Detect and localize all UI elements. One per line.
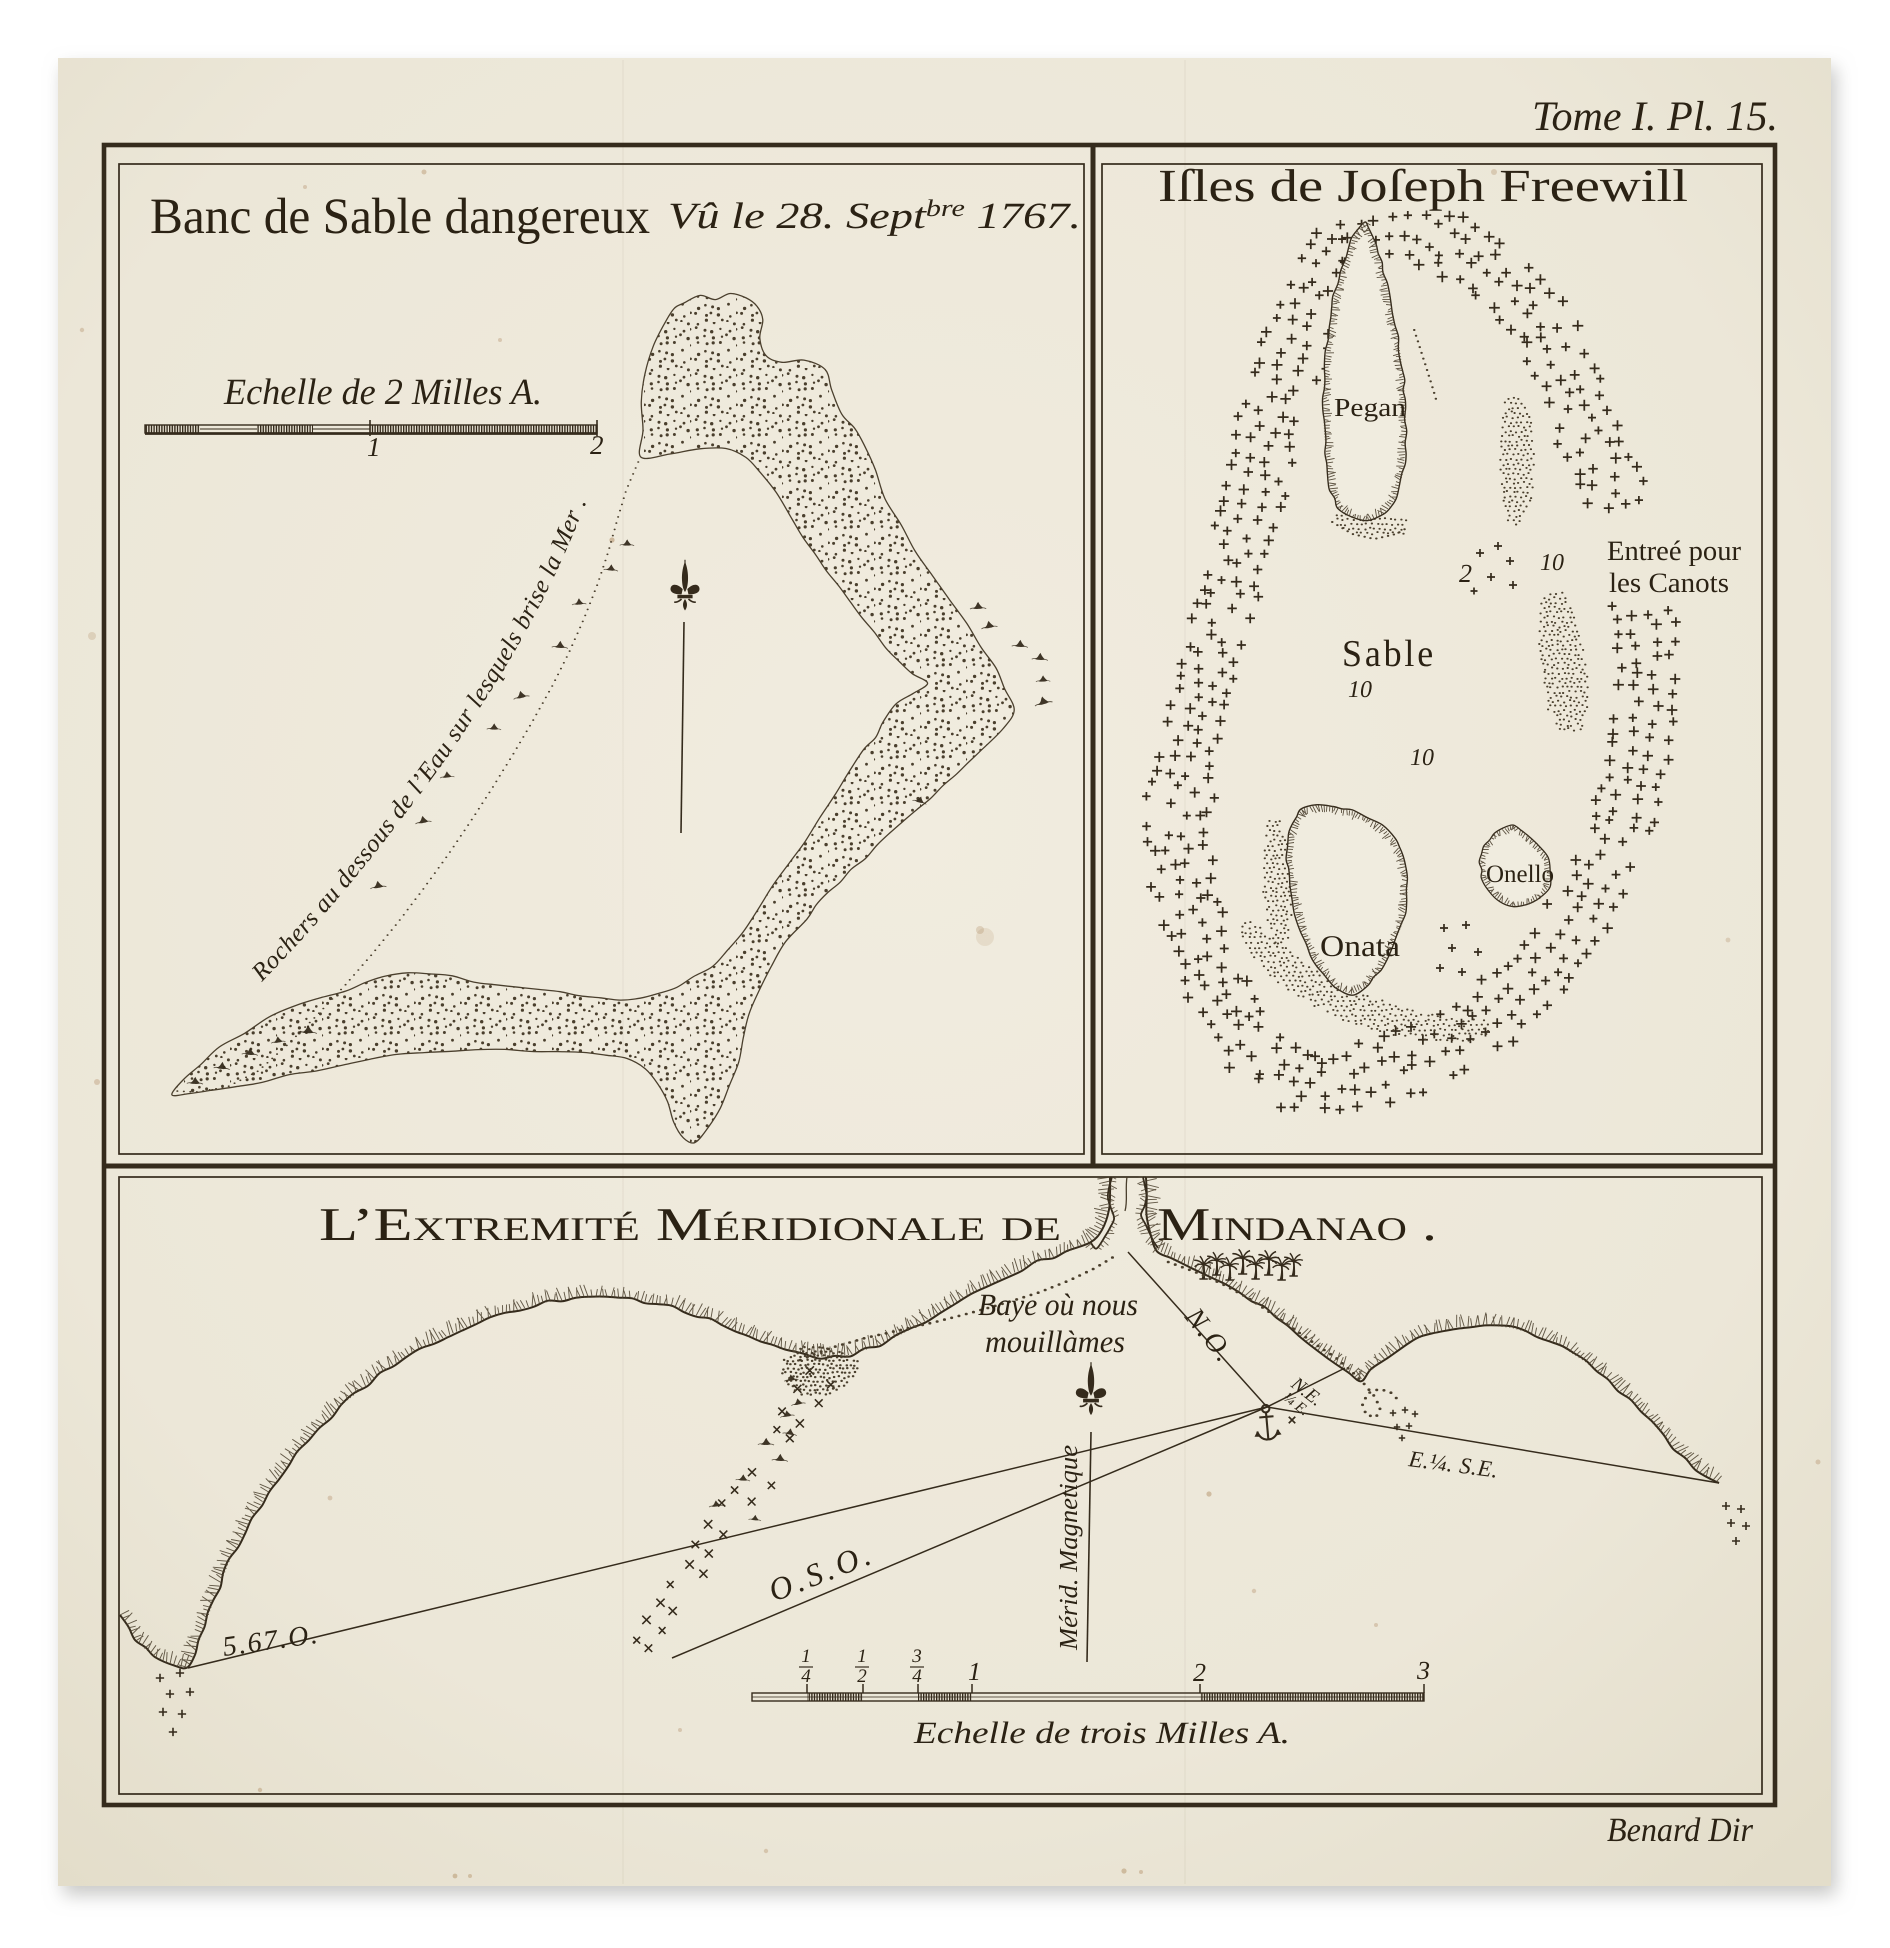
svg-text:2: 2 [1193, 1658, 1206, 1687]
svg-text:Echelle de trois Milles A.: Echelle de trois Milles A. [913, 1715, 1290, 1750]
svg-text:Pegan: Pegan [1334, 393, 1406, 422]
svg-text:Tome I. Pl. 15.: Tome I. Pl. 15. [1532, 94, 1778, 140]
svg-text:Onata: Onata [1320, 930, 1400, 963]
svg-text:Echelle de 2 Milles A.: Echelle de 2 Milles A. [223, 372, 542, 413]
svg-text:les Canots: les Canots [1609, 568, 1729, 599]
svg-text:10: 10 [1410, 745, 1434, 771]
svg-text:Benard Dir: Benard Dir [1607, 1812, 1754, 1849]
svg-text:Sable: Sable [1342, 633, 1436, 675]
svg-text:Mindanao .: Mindanao . [1157, 1199, 1437, 1251]
svg-text:1: 1 [857, 1646, 867, 1667]
svg-text:Onello: Onello [1486, 861, 1554, 888]
svg-text:3: 3 [911, 1646, 922, 1667]
svg-text:3: 3 [1416, 1656, 1430, 1685]
svg-text:2: 2 [590, 430, 604, 460]
svg-text:2: 2 [857, 1666, 867, 1687]
svg-text:mouillàmes: mouillàmes [985, 1324, 1125, 1359]
svg-text:2: 2 [1459, 559, 1472, 588]
svg-text:10: 10 [1348, 677, 1372, 703]
svg-text:1: 1 [801, 1646, 811, 1667]
svg-text:L’Extremité Méridionale de: L’Extremité Méridionale de [319, 1199, 1061, 1251]
svg-text:1: 1 [968, 1657, 981, 1686]
svg-text:4: 4 [912, 1666, 922, 1687]
svg-text:Banc de Sable dangereux: Banc de Sable dangereux [150, 189, 650, 245]
svg-text:Baye où nous: Baye où nous [978, 1287, 1138, 1322]
svg-text:10: 10 [1540, 550, 1564, 576]
svg-text:Vû le 28. Septbre 1767.: Vû le 28. Septbre 1767. [668, 196, 1081, 237]
svg-text:Entreé pour: Entreé pour [1607, 536, 1742, 567]
svg-text:4: 4 [801, 1666, 811, 1687]
svg-text:Iſles de Joſeph Freewill: Iſles de Joſeph Freewill [1158, 160, 1688, 211]
svg-text:1: 1 [367, 432, 381, 462]
svg-text:Mérid. Magnetique: Mérid. Magnetique [1054, 1445, 1083, 1651]
